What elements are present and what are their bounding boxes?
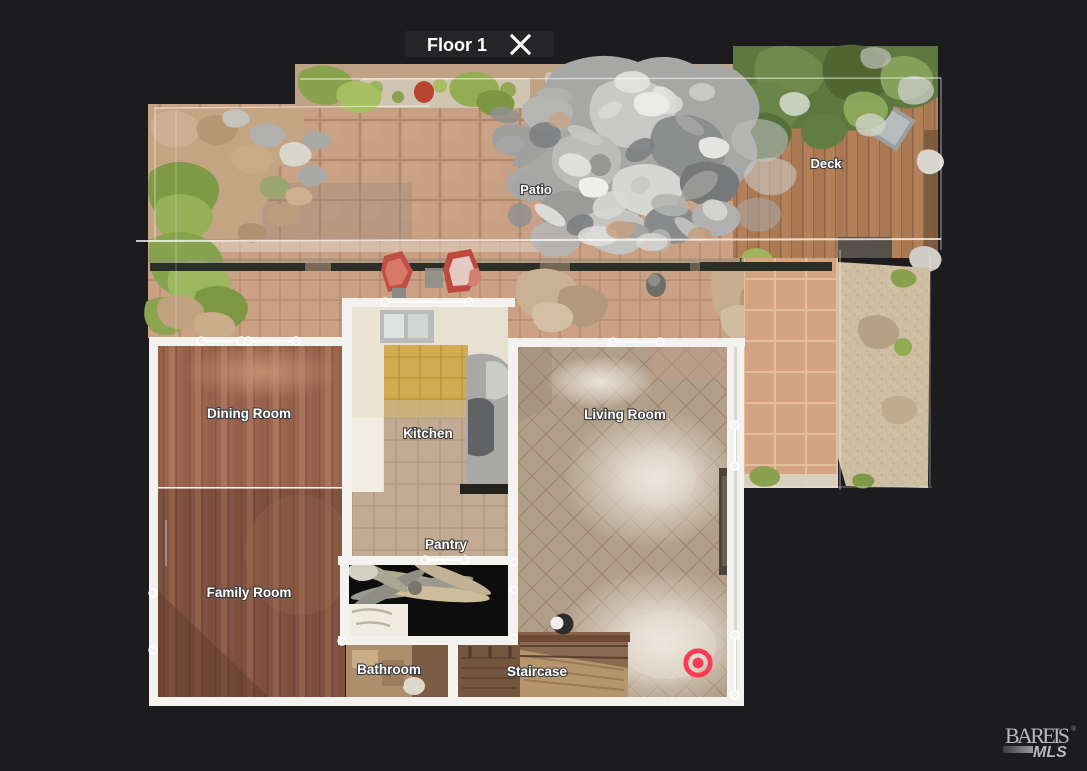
svg-text:Floor 1: Floor 1 [427,35,487,55]
svg-text:Bathroom: Bathroom [357,662,421,677]
svg-text:Staircase: Staircase [507,664,568,679]
svg-text:MLS: MLS [1033,744,1067,761]
svg-text:Pantry: Pantry [425,537,468,552]
svg-text:®: ® [1071,725,1077,733]
svg-text:Living Room: Living Room [584,407,666,422]
svg-text:Deck: Deck [810,156,842,171]
svg-text:Kitchen: Kitchen [403,426,453,441]
svg-text:Dining Room: Dining Room [207,406,291,421]
svg-text:Family Room: Family Room [207,585,292,600]
svg-text:Patio: Patio [520,182,552,197]
